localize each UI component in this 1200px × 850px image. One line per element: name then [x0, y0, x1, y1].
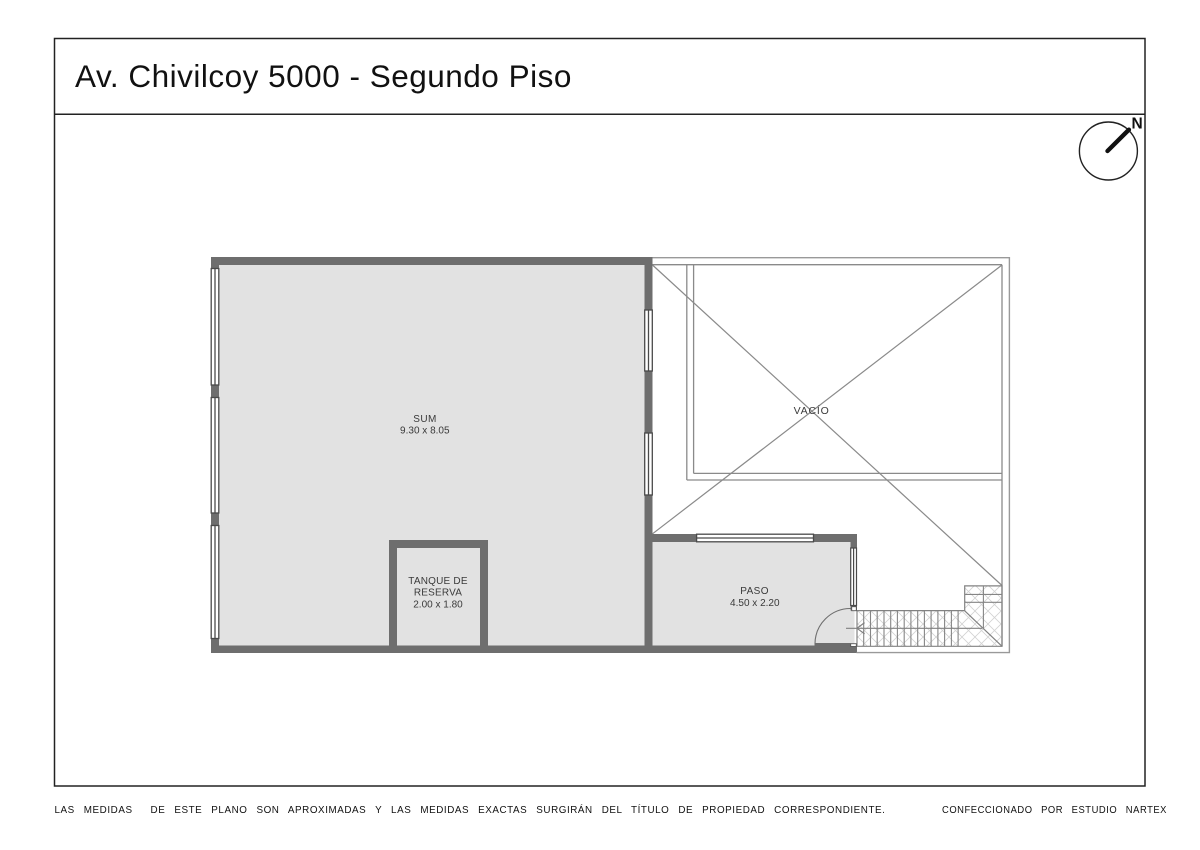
svg-text:Av. Chivilcoy 5000 - Segundo P: Av. Chivilcoy 5000 - Segundo Piso — [75, 58, 572, 94]
svg-text:CONFECCIONADO POR ESTUDIO NART: CONFECCIONADO POR ESTUDIO NARTEX — [942, 805, 1167, 816]
svg-text:9.30 x 8.05: 9.30 x 8.05 — [400, 426, 450, 437]
svg-text:N: N — [1132, 116, 1143, 133]
svg-text:VACÍO: VACÍO — [794, 404, 830, 417]
svg-text:4.50 x 2.20: 4.50 x 2.20 — [730, 598, 780, 609]
svg-text:LAS MEDIDAS DE ESTE PLANO SON: LAS MEDIDAS DE ESTE PLANO SON APROXIMADA… — [55, 803, 886, 816]
svg-text:SUM: SUM — [413, 414, 436, 425]
svg-text:TANQUE DE: TANQUE DE — [408, 576, 468, 587]
svg-text:PASO: PASO — [740, 586, 769, 597]
svg-text:2.00 x 1.80: 2.00 x 1.80 — [413, 599, 463, 610]
svg-text:RESERVA: RESERVA — [414, 588, 462, 599]
